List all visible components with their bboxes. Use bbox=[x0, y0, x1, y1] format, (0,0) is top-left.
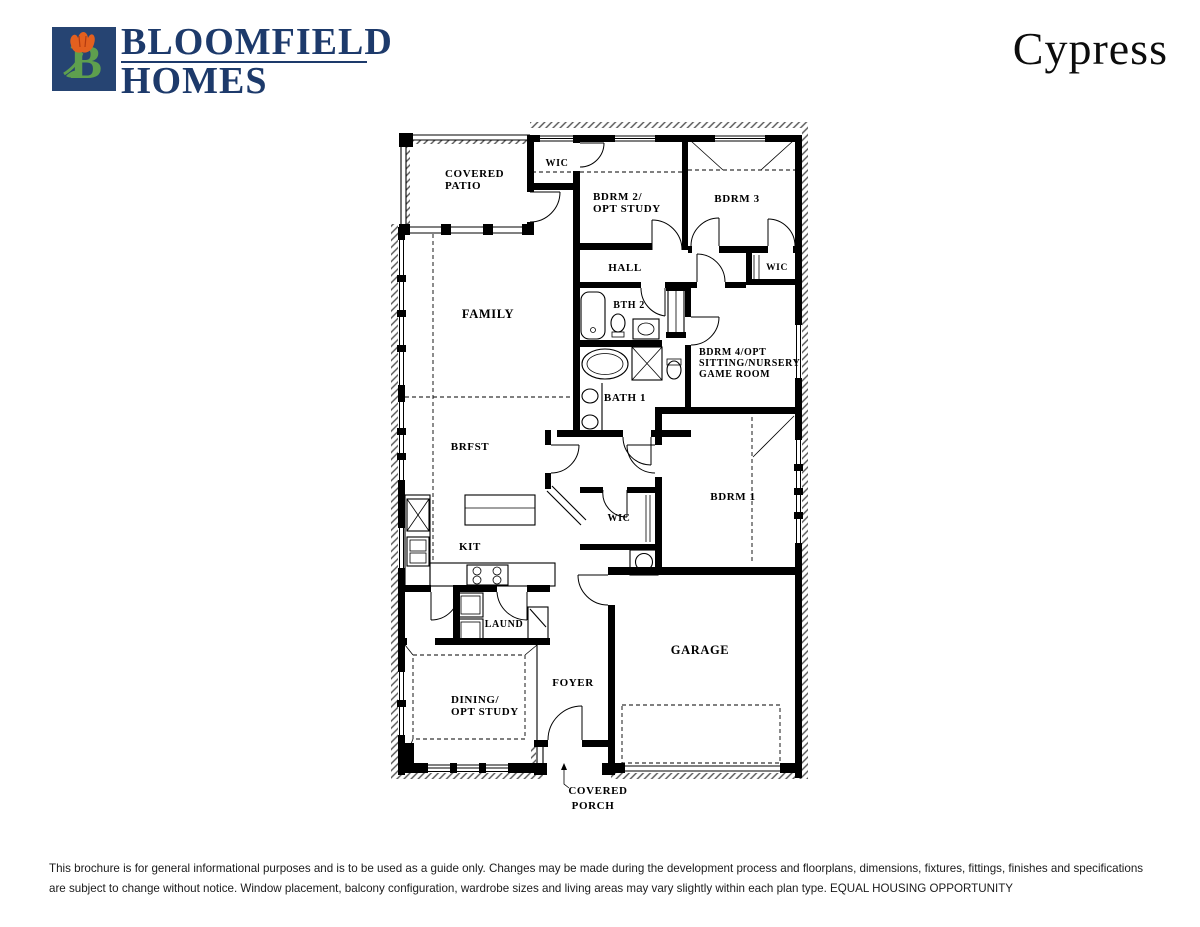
brand-wordmark: BLOOMFIELD HOMES bbox=[121, 24, 393, 99]
label-covered-porch-2: PORCH bbox=[572, 800, 615, 812]
bath1-sink-2 bbox=[582, 415, 598, 429]
brand-line-homes: HOMES bbox=[121, 63, 393, 99]
label-wic-bdrm1: WIC bbox=[608, 513, 631, 524]
plan-name: Cypress bbox=[1013, 22, 1168, 75]
label-laund: LAUND bbox=[485, 619, 524, 630]
bath1-toilet bbox=[667, 361, 681, 379]
label-bdrm4-2: SITTING/NURSERY bbox=[699, 358, 801, 369]
label-garage: GARAGE bbox=[671, 643, 729, 657]
bth2-toilet bbox=[611, 314, 625, 332]
disclaimer-text: This brochure is for general information… bbox=[49, 859, 1157, 901]
exterior-walls bbox=[398, 135, 802, 778]
label-bath1: BATH 1 bbox=[604, 392, 646, 404]
label-bth2: BTH 2 bbox=[613, 300, 645, 311]
label-bdrm4-1: BDRM 4/OPT bbox=[699, 347, 766, 358]
label-covered-porch-1: COVERED bbox=[568, 785, 627, 797]
kitchen-counter-bottom bbox=[430, 563, 555, 586]
label-bdrm1: BDRM 1 bbox=[710, 491, 755, 503]
label-covered-patio-2: PATIO bbox=[445, 180, 481, 192]
bth2-sink bbox=[633, 319, 659, 339]
label-dining-1: DINING/ bbox=[451, 694, 500, 706]
interior-walls bbox=[398, 135, 802, 775]
bth2-tub bbox=[581, 292, 605, 339]
label-foyer: FOYER bbox=[552, 677, 594, 689]
label-dining-2: OPT STUDY bbox=[451, 706, 519, 718]
label-wic-bdrm2: WIC bbox=[546, 158, 569, 169]
garage-bay-dashed bbox=[622, 705, 780, 763]
brand-line-bloomfield: BLOOMFIELD bbox=[121, 24, 393, 60]
brochure-page: B BLOOMFIELD HOMES Cypress bbox=[0, 0, 1200, 927]
label-wic-bdrm3: WIC bbox=[766, 263, 788, 273]
floorplan-drawing: COVERED PATIO WIC BDRM 2/ OPT STUDY BDRM… bbox=[389, 121, 813, 827]
label-kit: KIT bbox=[459, 541, 481, 553]
label-hall: HALL bbox=[608, 262, 642, 274]
bloomfield-logo: B bbox=[52, 27, 116, 91]
label-family: FAMILY bbox=[462, 307, 514, 321]
label-bdrm4-3: GAME ROOM bbox=[699, 369, 770, 380]
label-bdrm2-1: BDRM 2/ bbox=[593, 191, 642, 203]
kitchen-island bbox=[465, 495, 535, 525]
label-bdrm2-2: OPT STUDY bbox=[593, 203, 661, 215]
washer bbox=[458, 593, 483, 617]
bath1-sink-1 bbox=[582, 389, 598, 403]
label-brfst: BRFST bbox=[451, 441, 490, 453]
label-covered-patio-1: COVERED bbox=[445, 168, 504, 180]
windows bbox=[397, 135, 803, 773]
label-bdrm3: BDRM 3 bbox=[714, 193, 759, 205]
